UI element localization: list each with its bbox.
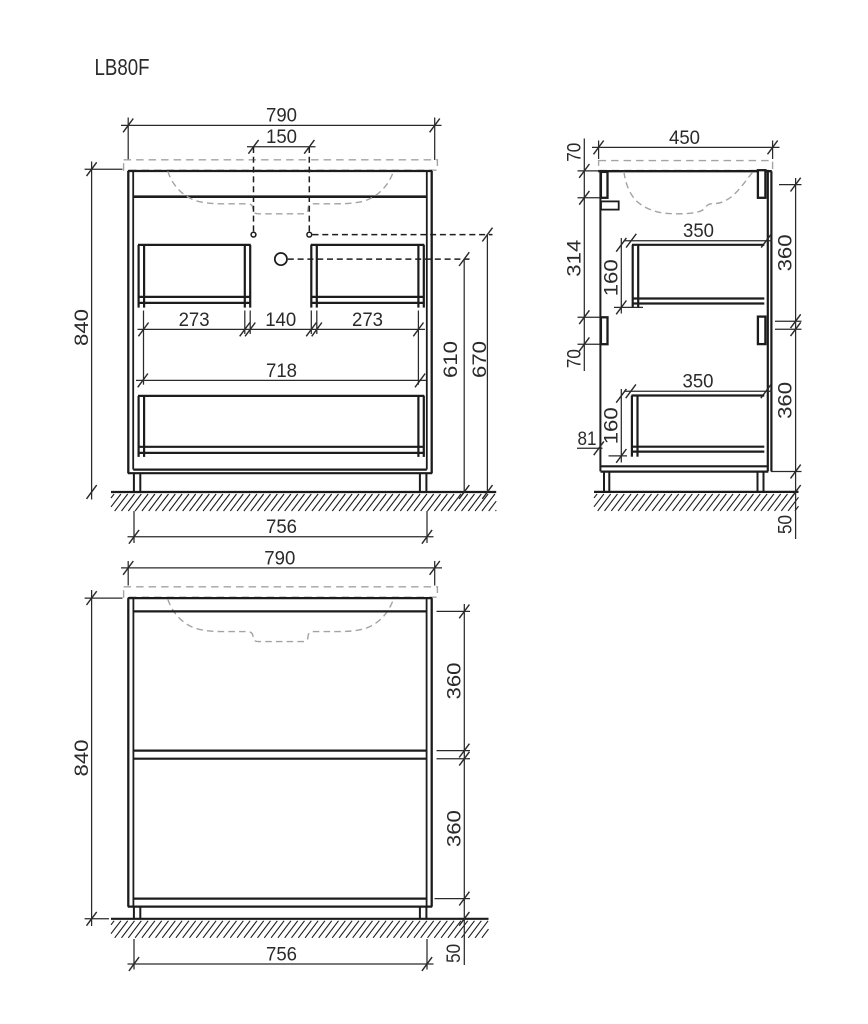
svg-text:50: 50 [443,944,465,963]
svg-text:840: 840 [71,739,93,776]
svg-text:273: 273 [352,309,383,331]
svg-text:840: 840 [71,309,93,346]
svg-text:150: 150 [266,126,297,148]
svg-text:450: 450 [669,127,700,149]
svg-text:160: 160 [600,407,622,444]
svg-text:350: 350 [683,220,714,242]
svg-text:790: 790 [266,105,297,127]
svg-text:360: 360 [775,382,797,419]
svg-text:81: 81 [578,428,597,450]
svg-text:160: 160 [600,259,622,296]
svg-text:350: 350 [683,371,714,393]
svg-text:50: 50 [775,515,797,534]
svg-text:70: 70 [564,349,586,368]
svg-text:273: 273 [179,309,210,331]
svg-text:LB80F: LB80F [95,54,150,80]
svg-text:610: 610 [440,341,462,378]
svg-text:70: 70 [564,143,586,162]
svg-text:360: 360 [444,810,466,847]
svg-text:790: 790 [264,547,295,569]
svg-text:670: 670 [469,341,491,378]
svg-text:140: 140 [265,309,296,331]
svg-text:360: 360 [444,662,466,699]
svg-text:314: 314 [564,240,586,277]
svg-text:718: 718 [266,360,297,382]
svg-text:360: 360 [775,234,797,271]
svg-text:756: 756 [266,943,297,965]
svg-text:756: 756 [266,516,297,538]
